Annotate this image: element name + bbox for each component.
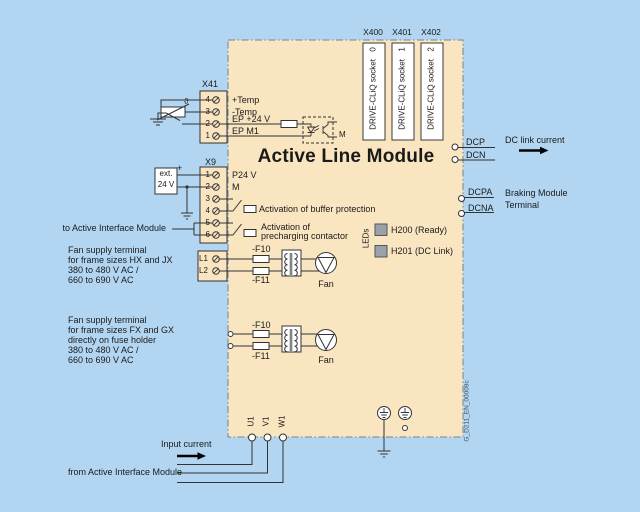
fan-label: Fan <box>315 356 337 366</box>
x401-header: X401 <box>390 28 414 37</box>
activation-precharge-label-2: precharging contactor <box>261 232 348 242</box>
to-aim-label: to Active Interface Module <box>60 224 166 234</box>
input-current-arrow-icon <box>177 452 206 459</box>
x9-pin-number: 2 <box>199 183 210 192</box>
x41-pin-number: 1 <box>199 132 210 141</box>
fuse-f11-label: -F11 <box>252 276 270 286</box>
dc-current-arrow-icon <box>519 147 549 154</box>
x9-pin-number: 4 <box>199 207 210 216</box>
opto-m-label: M <box>339 131 346 140</box>
ext-supply-label: ext. <box>155 170 177 179</box>
earth-symbol <box>181 213 193 219</box>
x9-pin-number: 5 <box>199 219 210 228</box>
leds-rotated-label: LEDs <box>363 224 372 252</box>
h201-label: H201 (DC Link) <box>391 247 453 257</box>
input-current-label: Input current <box>161 440 212 450</box>
pin-label-epm1: EP M1 <box>232 127 259 137</box>
pin-label-p24: P24 V <box>232 171 257 181</box>
module-title: Active Line Module <box>236 147 456 168</box>
braking-module-label-2: Terminal <box>505 201 539 211</box>
dcna-label: DCNA <box>468 204 494 214</box>
ext-supply-voltage: 24 V <box>155 181 177 190</box>
led-h201 <box>375 246 387 258</box>
pin-label-ep24: EP +24 V <box>232 115 270 125</box>
x41-pin-number: 4 <box>199 96 210 105</box>
fuse-f10-label: -F10 <box>252 321 271 331</box>
x9-pin-number: 6 <box>199 231 210 240</box>
u1-terminal-label: U1 <box>247 411 256 431</box>
activation-buffer-label: Activation of buffer protection <box>259 205 375 215</box>
diagram-canvas: X41 4 3 2 1 +Temp -Temp EP +24 V EP M1 ϑ… <box>0 0 640 512</box>
x9-pin-number: 3 <box>199 195 210 204</box>
drive-cliq-socket-label: DRIVE-CLiQ socket <box>370 54 379 134</box>
drive-cliq-socket-label: DRIVE-CLiQ socket <box>428 54 437 134</box>
braking-module-label-1: Braking Module <box>505 189 568 199</box>
pin-label-m: M <box>232 183 240 193</box>
plus-sign: + <box>177 164 182 174</box>
fan-supply-note-2: 660 to 690 V AC <box>68 356 134 366</box>
fuse-f10-label: -F10 <box>252 245 271 255</box>
screw-terminals <box>213 97 220 275</box>
x402-header: X402 <box>419 28 443 37</box>
dc-link-current-label: DC link current <box>505 136 565 146</box>
from-aim-label: from Active Interface Module <box>68 468 182 478</box>
fan-label: Fan <box>315 280 337 290</box>
x9-pin-number: 1 <box>199 171 210 180</box>
precharge-coil-symbol <box>244 230 256 237</box>
fan-supply-note-1: 660 to 690 V AC <box>68 276 134 286</box>
resistor-symbol <box>281 121 297 128</box>
l1-label: L1 <box>199 255 208 264</box>
drive-cliq-socket-label: DRIVE-CLiQ socket <box>399 54 408 134</box>
junction-dot <box>185 185 188 188</box>
fuse-f11-label: -F11 <box>252 352 270 362</box>
x41-pin-number: 2 <box>199 120 210 129</box>
l2-label: L2 <box>199 267 208 276</box>
buffer-coil-symbol <box>244 206 256 213</box>
led-h200 <box>375 224 387 236</box>
h200-label: H200 (Ready) <box>391 226 447 236</box>
x41-pin-number: 3 <box>199 108 210 117</box>
x41-header: X41 <box>202 80 218 90</box>
theta-symbol: ϑ <box>184 98 188 107</box>
x9-header: X9 <box>205 158 216 168</box>
watermark-id: G_D211_EN_00009c <box>463 381 470 441</box>
x400-header: X400 <box>361 28 385 37</box>
dcpa-label: DCPA <box>468 188 492 198</box>
dcp-label: DCP <box>466 138 485 148</box>
dcn-label: DCN <box>466 151 486 161</box>
w1-terminal-label: W1 <box>278 411 287 431</box>
v1-terminal-label: V1 <box>263 411 272 431</box>
pin-label-plus-temp: +Temp <box>232 96 259 106</box>
